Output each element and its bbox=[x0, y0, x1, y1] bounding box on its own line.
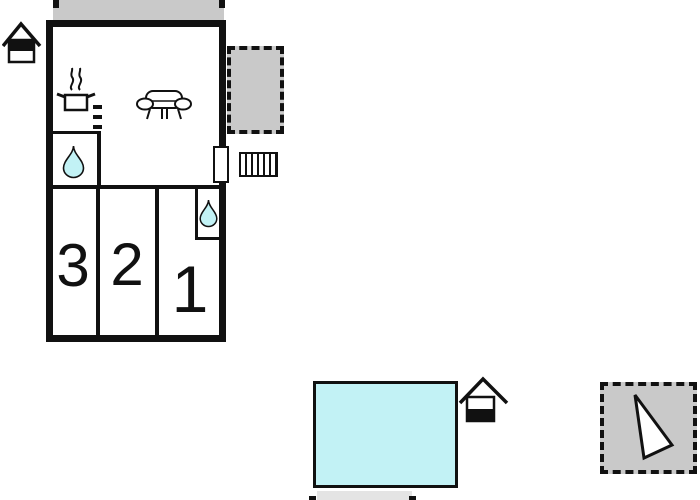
side-terrace bbox=[227, 46, 284, 134]
hut-icon bbox=[2, 20, 44, 66]
room32-divider-wall bbox=[96, 189, 100, 336]
water-drop-icon bbox=[199, 199, 218, 228]
hut-icon bbox=[457, 376, 509, 424]
room-number-2: 2 bbox=[110, 235, 143, 295]
main-divider-wall bbox=[46, 185, 226, 189]
north-terrace bbox=[53, 0, 224, 20]
floor-plan: 3 2 1 bbox=[0, 0, 700, 500]
terrace-border-dash-right bbox=[219, 0, 225, 8]
bathroom-top-wall bbox=[46, 131, 101, 134]
swimming-pool bbox=[313, 381, 458, 488]
pool-path bbox=[317, 491, 412, 500]
room-number-3: 3 bbox=[56, 236, 89, 296]
path-border-dash-left bbox=[309, 496, 316, 500]
north-arrow-icon bbox=[600, 382, 697, 474]
sofa-icon bbox=[135, 88, 193, 122]
room-number-1: 1 bbox=[172, 256, 209, 322]
water-drop-icon bbox=[62, 145, 85, 179]
room21-divider-wall bbox=[155, 189, 159, 336]
path-border-dash-right bbox=[409, 496, 416, 500]
wc-left-wall bbox=[195, 189, 198, 240]
door-marker bbox=[213, 146, 229, 183]
stove-icon bbox=[52, 66, 98, 114]
bathroom-right-wall bbox=[97, 131, 101, 189]
stairs-icon bbox=[239, 152, 278, 177]
terrace-border-dash-left bbox=[53, 0, 59, 8]
wc-bottom-wall bbox=[195, 237, 226, 240]
